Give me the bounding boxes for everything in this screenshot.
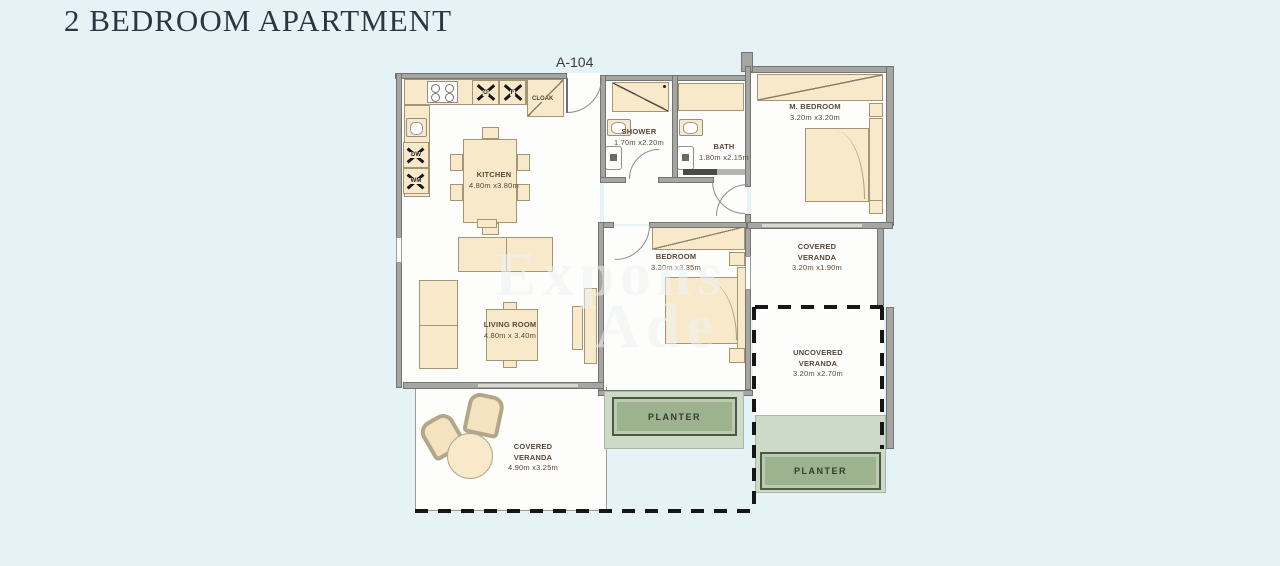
wall — [600, 75, 606, 179]
shower-toilet — [605, 146, 622, 170]
room-dims: 4.80m x 3.40m — [470, 331, 550, 342]
unit-label: A-104 — [556, 54, 593, 70]
room-dims: 4.80m x3.80m — [451, 181, 537, 192]
room-dims: 1.70m x2.20m — [608, 138, 670, 149]
room-name: BATH — [695, 142, 753, 153]
wall — [598, 222, 604, 392]
burner-icon — [445, 84, 454, 93]
room-name: BEDROOM — [640, 252, 712, 263]
cloak-closet: CLOAK — [527, 79, 564, 117]
bath-toilet — [677, 146, 694, 170]
room-name: M. BEDROOM — [775, 102, 855, 113]
wall — [886, 307, 894, 449]
washing-machine-marker: WM — [403, 168, 429, 194]
entry-door-leaf — [566, 78, 568, 113]
boundary-dash-top — [755, 305, 883, 309]
sofa-horizontal — [458, 237, 553, 272]
room-name: COVERED VERANDA — [500, 442, 566, 463]
oven-marker: O — [472, 80, 499, 105]
bath-vanity-light — [717, 169, 747, 175]
page-title: 2 BEDROOM APARTMENT — [64, 4, 452, 38]
wall — [745, 66, 751, 187]
room-dims: 3.30m x3.35m — [640, 263, 712, 274]
dining-chair — [482, 127, 499, 139]
boundary-dash-left — [752, 307, 756, 513]
arrow-dot — [663, 85, 666, 88]
planter1: PLANTER — [612, 397, 737, 436]
uncovered-veranda-label: UNCOVERED VERANDA 3.20m x2.70m — [783, 348, 853, 380]
bath-vanity-dark — [683, 169, 717, 175]
fridge-marker: F — [499, 80, 526, 105]
wall — [395, 73, 567, 79]
tv-unit-small — [572, 306, 583, 350]
room-dims: 3.20m x3.20m — [775, 113, 855, 124]
tv-unit — [584, 288, 597, 364]
dining-chair — [517, 154, 530, 171]
room-name: SHOWER — [608, 127, 670, 138]
floorplan-page: { "page": { "title": "2 BEDROOM APARTMEN… — [0, 0, 1280, 566]
nightstand — [729, 252, 745, 266]
sofa-seat-divider — [506, 238, 507, 271]
covered-veranda-bottom-label: COVERED VERANDA 4.90m x3.25m — [500, 442, 566, 474]
room-name: KITCHEN — [451, 170, 537, 181]
kitchen-sink — [406, 118, 427, 137]
veranda-round-table — [447, 433, 493, 479]
bedroom-wardrobe — [652, 226, 745, 250]
side-table — [477, 219, 497, 228]
burner-icon — [445, 93, 454, 102]
wall — [745, 228, 751, 390]
wall — [747, 66, 893, 73]
dining-chair — [450, 154, 463, 171]
sofa-seat-divider — [420, 325, 457, 326]
bedroom-label: BEDROOM 3.30m x3.35m — [640, 252, 712, 273]
nightstand — [869, 103, 883, 117]
sofa-vertical — [419, 280, 458, 369]
blanket-curve — [706, 280, 737, 340]
dishwasher-marker: DW — [403, 142, 429, 168]
room-name: LIVING ROOM — [470, 320, 550, 331]
blanket-curve — [836, 131, 865, 199]
bedroom-bed — [665, 277, 742, 344]
bathtub — [678, 83, 744, 111]
wall — [877, 225, 884, 309]
burner-icon — [431, 84, 440, 93]
wall — [672, 75, 678, 179]
wall — [886, 66, 894, 226]
boundary-dash-right — [880, 307, 884, 449]
nightstand — [729, 348, 745, 363]
room-dims: 1.80m x2.15m — [695, 153, 753, 164]
wall — [600, 177, 626, 183]
master-bed — [805, 128, 869, 202]
living-room-label: LIVING ROOM 4.80m x 3.40m — [470, 320, 550, 341]
burner-icon — [431, 93, 440, 102]
boundary-dash-bottom — [415, 509, 757, 513]
window — [396, 237, 402, 263]
planter1-label: PLANTER — [648, 412, 701, 422]
bath-label: BATH 1.80m x2.15m — [695, 142, 753, 163]
sliding-door — [762, 224, 862, 227]
cloak-label: CLOAK — [532, 96, 553, 102]
planter2: PLANTER — [760, 452, 881, 490]
window — [745, 256, 751, 290]
shower-label: SHOWER 1.70m x2.20m — [608, 127, 670, 148]
stove — [427, 81, 458, 103]
master-bedroom-label: M. BEDROOM 3.20m x3.20m — [775, 102, 855, 123]
covered-veranda-right-label: COVERED VERANDA 3.20m x1.90m — [786, 242, 848, 274]
nightstand — [869, 200, 883, 214]
room-dims: 4.90m x3.25m — [500, 463, 566, 474]
planter2-label: PLANTER — [794, 466, 847, 476]
sliding-door — [478, 384, 578, 387]
master-wardrobe — [757, 74, 883, 101]
room-dims: 3.20m x2.70m — [783, 369, 853, 380]
room-dims: 3.20m x1.90m — [786, 263, 848, 274]
shower-closet — [612, 82, 669, 112]
room-name: COVERED VERANDA — [786, 242, 848, 263]
wall — [396, 73, 402, 388]
kitchen-label: KITCHEN 4.80m x3.80m — [451, 170, 537, 191]
wall — [658, 177, 714, 183]
wall — [649, 222, 747, 228]
bath-sink — [679, 119, 703, 136]
room-name: UNCOVERED VERANDA — [783, 348, 853, 369]
